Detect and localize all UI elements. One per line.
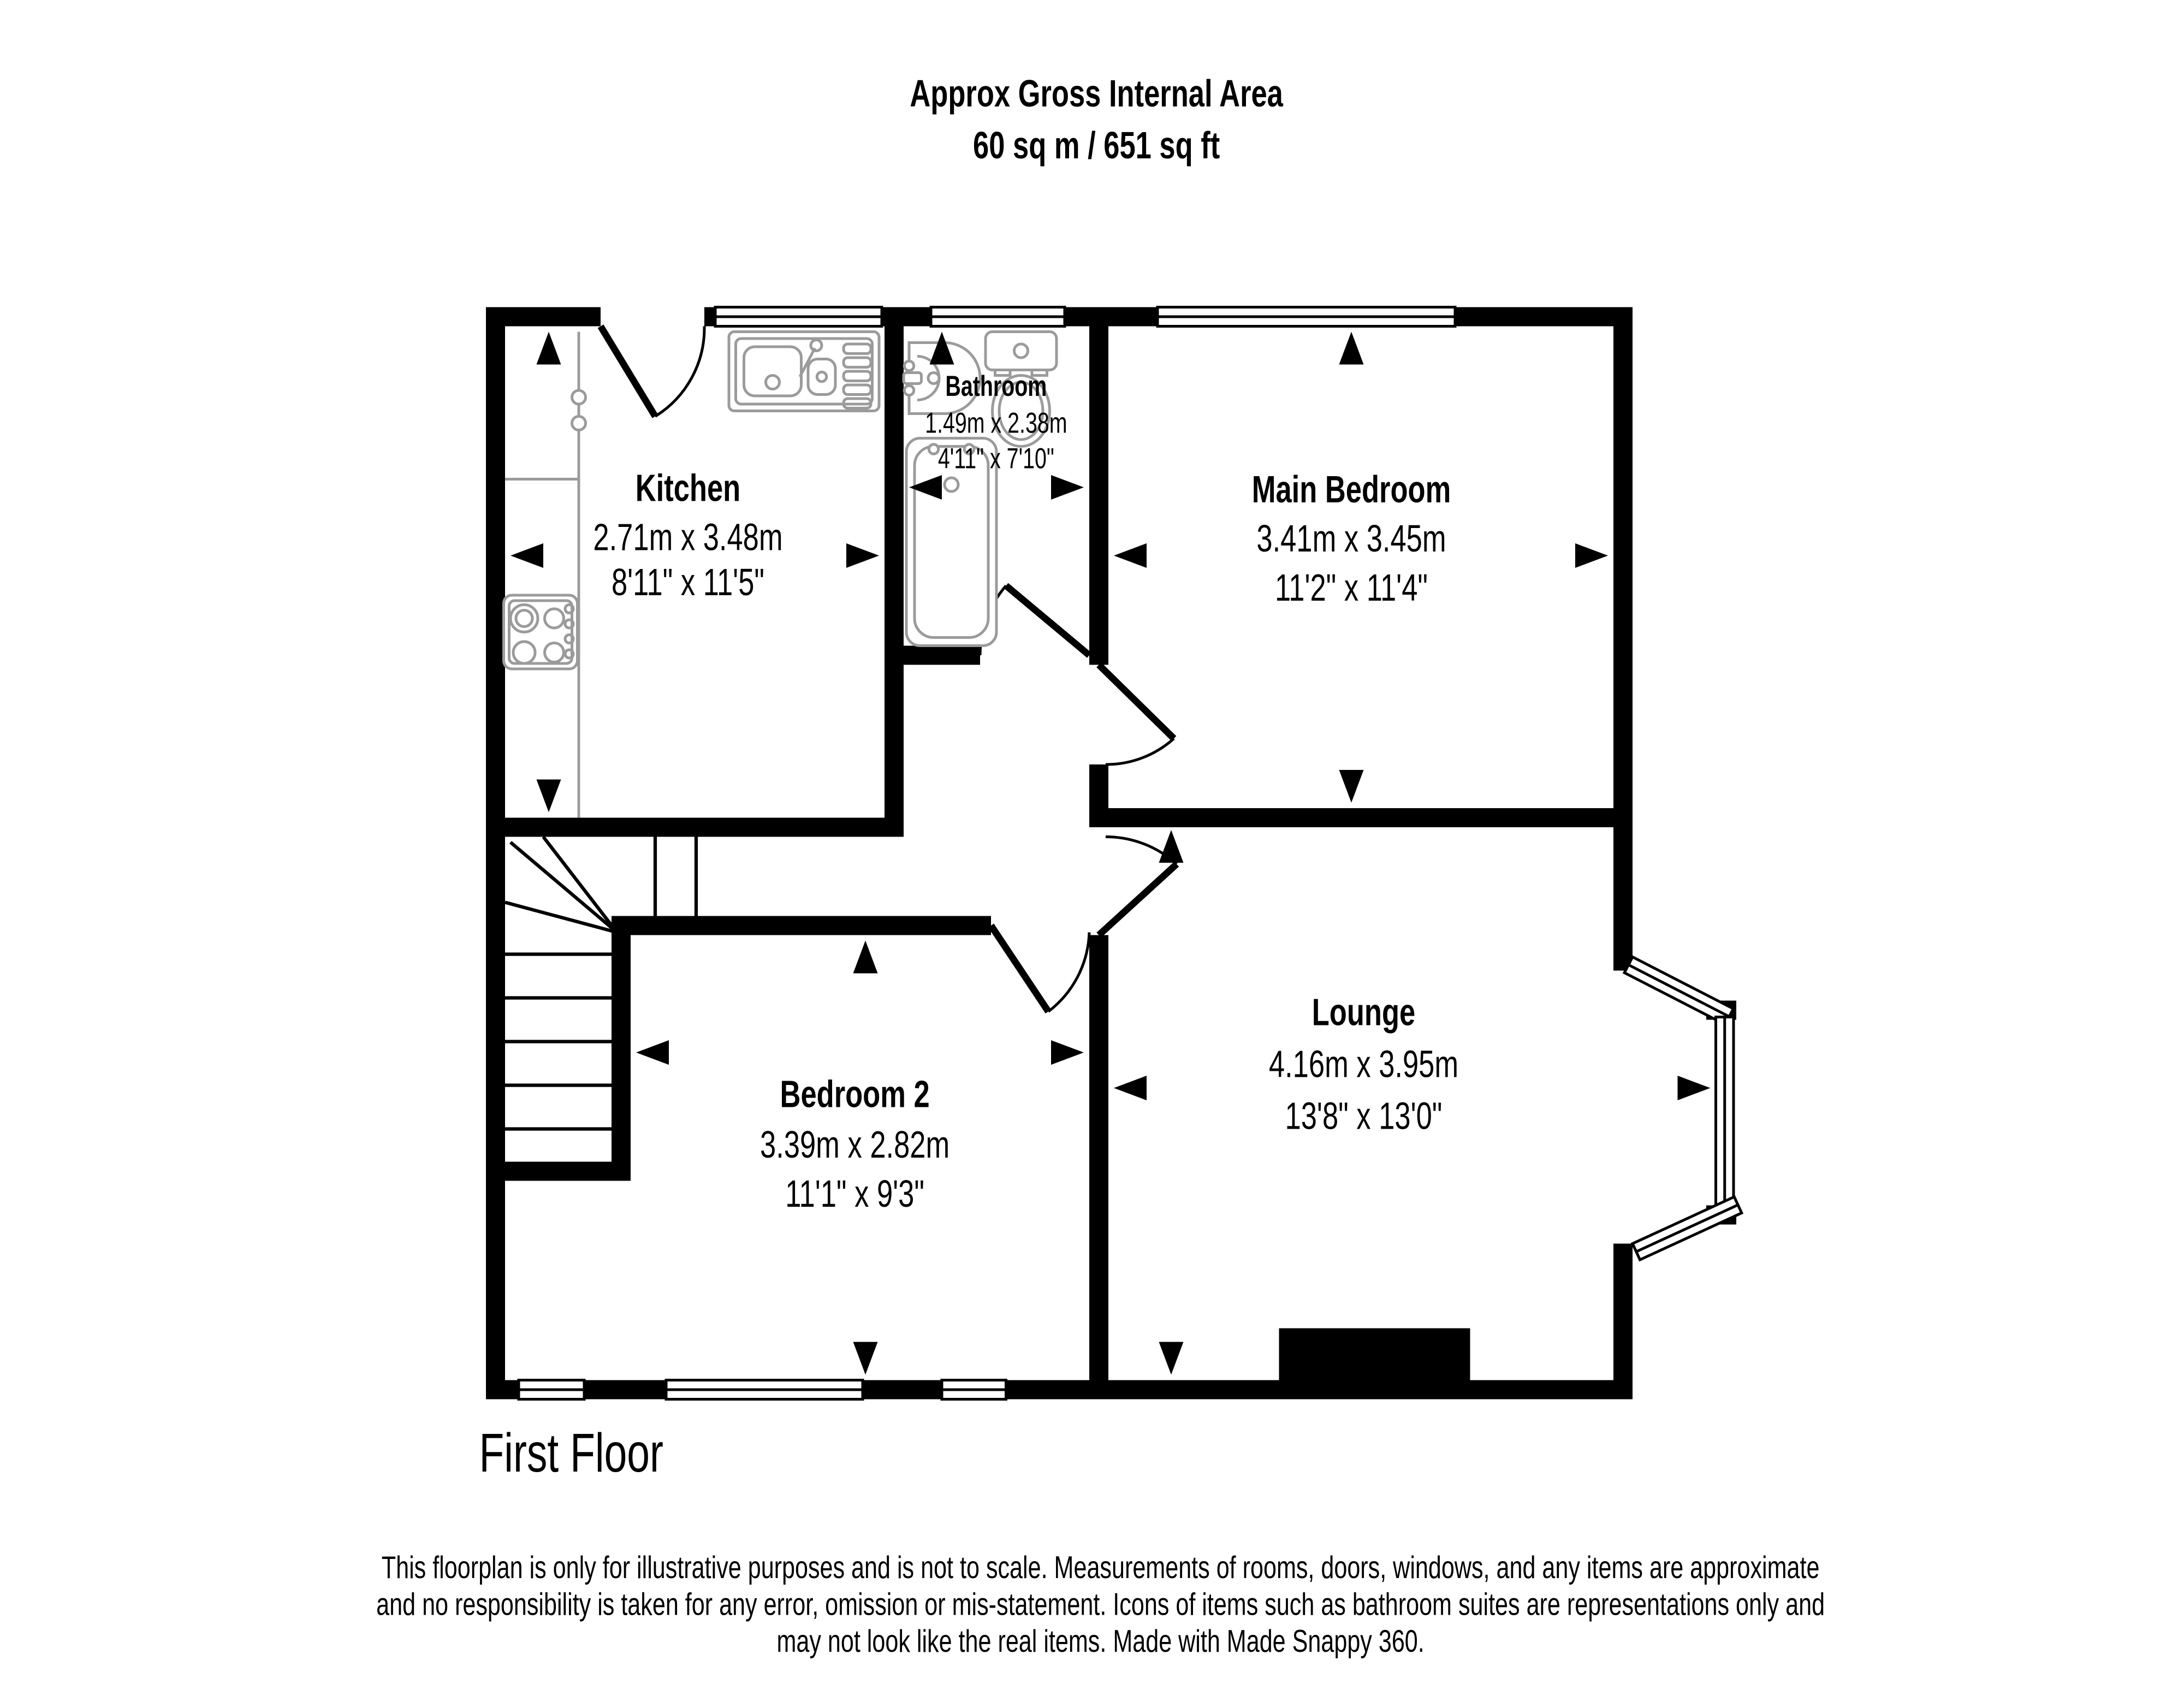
door-swing-icon [991,926,1048,1012]
stairs-icon [505,837,696,1129]
kitchen-arrow-right [846,543,879,568]
chimney-breast-icon [1279,1329,1470,1383]
disclaimer-line3: may not look like the real items. Made w… [776,1623,1424,1658]
wall-stairs-bottom [486,1162,631,1181]
bedroom2-window-middle [666,1380,863,1400]
bathroom-window [931,307,1065,327]
wall-top-d [1065,307,1158,327]
main-bedroom-arrow-right [1575,543,1608,568]
bedroom2-arrow-left [636,1040,669,1065]
room-label-lounge: Lounge [1312,991,1416,1034]
main-bedroom-arrow-left [1114,543,1147,568]
room-imperial-main-bedroom: 11'2" x 11'4" [1275,567,1428,609]
room-metric-kitchen: 2.71m x 3.48m [593,516,782,559]
wall-kitchen-bottom [486,818,904,837]
room-label-main-bedroom: Main Bedroom [1252,469,1451,511]
wall-mainbedroom-left-upper [1089,327,1108,665]
kitchen-arrow-left [511,543,543,568]
room-imperial-bedroom2: 11'1" x 9'3" [785,1173,924,1215]
wall-bedroom2-top [612,916,991,935]
room-label-bedroom2: Bedroom 2 [780,1073,930,1116]
bedroom2-door [991,926,1089,1012]
room-label-kitchen: Kitchen [636,467,740,509]
room-imperial-lounge: 13'8" x 13'0" [1285,1095,1443,1137]
disclaimer-line1: This floorplan is only for illustrative … [382,1550,1820,1585]
room-imperial-kitchen: 8'11" x 11'5" [612,561,764,604]
bedroom2-arrow-right [1051,1040,1084,1065]
counter-knob [572,417,586,430]
wall-right-upper [1613,307,1633,971]
lounge-arrow-down [1159,1342,1184,1375]
bedroom2-arrow-down [853,1342,878,1375]
door-swing-icon [601,327,655,417]
wall-top-b [704,307,715,327]
main-bedroom-window [1158,307,1455,327]
kitchen-sink-icon [729,332,879,411]
door-swing-icon [1099,665,1174,739]
counter-icon [505,332,586,818]
wall-bathroom-bottom [885,646,980,665]
wall-lounge-left [1089,935,1108,1400]
room-metric-bedroom2: 3.39m x 2.82m [760,1124,949,1166]
main-bedroom-door [1099,665,1174,765]
room-label-bathroom: Bathroom [945,370,1047,402]
room-metric-main-bedroom: 3.41m x 3.45m [1256,518,1446,560]
bathroom-arrow-right [1051,475,1084,500]
floor-label: First Floor [479,1422,663,1483]
main-bedroom-arrow-up [1339,332,1364,365]
door-swing-icon [1006,586,1090,656]
page-title-line1: Approx Gross Internal Area [910,73,1283,115]
disclaimer-line2: and no responsibility is taken for any e… [376,1586,1825,1621]
wall-right-lower [1613,1244,1633,1400]
wall-left [486,307,505,1400]
wall-bottom [486,1380,1633,1400]
lounge-arrow-right [1678,1076,1711,1100]
kitchen-arrow-up [537,332,561,365]
stair-winder [543,837,617,933]
hob-icon [504,595,578,669]
room-imperial-bathroom: 4'11" x 7'10" [938,442,1054,475]
door-swing-icon [1099,864,1177,935]
page-title-line2: 60 sq m / 651 sq ft [973,124,1220,167]
room-metric-lounge: 4.16m x 3.95m [1269,1043,1458,1086]
wall-bedroom-lounge-divider [1089,808,1633,827]
wall-top-c [882,307,931,327]
bedroom2-arrow-up [853,941,878,974]
bedroom2-window-right [942,1380,1006,1400]
lounge-arrow-left [1114,1076,1147,1100]
wall-top-e [1455,307,1633,327]
bedroom2-window-left [519,1380,584,1400]
kitchen-door [601,327,704,417]
kitchen-arrow-down [537,780,561,813]
floorplan-image: Approx Gross Internal Area 60 sq m / 651… [0,0,2184,1690]
room-metric-bathroom: 1.49m x 2.38m [925,407,1067,439]
lounge-arrow-up [1159,830,1184,863]
kitchen-window [715,307,882,327]
main-bedroom-arrow-down [1339,770,1364,803]
wall-stairs [612,916,631,1162]
wall-kitchen-right [885,327,904,837]
counter-knob [572,390,586,404]
